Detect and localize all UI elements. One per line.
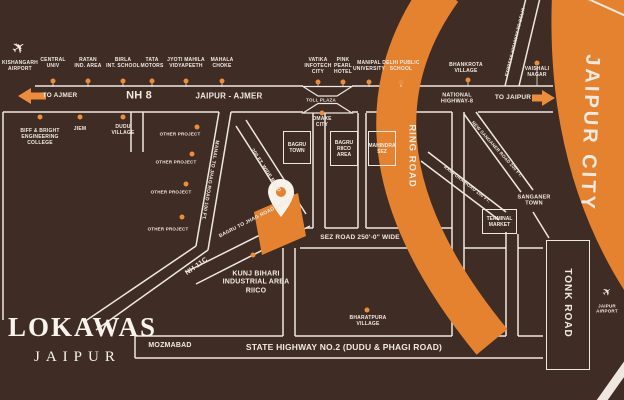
to-jaipur-arrow-icon: [532, 90, 555, 106]
label-to-jaipur: TO JAIPUR: [495, 94, 531, 102]
label-to-ajmer: TO AJMER: [43, 92, 78, 100]
location-map: ✈ ✈ KISHANGARH AIRPORT CENTRAL UNIV RATA…: [0, 0, 624, 400]
label-mahala-choke: MAHALA CHOKE: [211, 58, 234, 70]
label-kunj-bihari-riico: KUNJ BIHARI INDUSTRIAL AREA RIICO: [223, 271, 290, 296]
label-delhi-public-school: DELHI PUBLIC SCHOOL: [382, 61, 419, 73]
label-nh8: NH 8: [126, 90, 152, 103]
label-kishangarh-airport: KISHANGARH AIRPORT: [2, 61, 38, 73]
label-mozmabad: MOZMABAD: [148, 342, 191, 350]
label-other-project: OTHER PROJECT: [148, 226, 189, 231]
label-jiem: JIEM: [74, 127, 86, 133]
label-other-project: OTHER PROJECT: [156, 159, 197, 164]
label-other-project: OTHER PROJECT: [151, 189, 192, 194]
label-jaipur-ajmer: JAIPUR - AJMER: [196, 91, 263, 100]
label-other-project: OTHER PROJECT: [160, 131, 201, 136]
label-sanganer-town: SANGANER TOWN: [517, 195, 550, 208]
label-dudu-village: DUDU VILLAGE: [111, 125, 134, 137]
label-omaxe-city: OMAXE CITY: [312, 117, 331, 129]
label-vatika-infotech-city: VATIKA INFOTECH CITY: [304, 58, 331, 76]
brand-name: LOKAWAS: [8, 312, 157, 343]
label-central-univ: CENTRAL UNIV: [40, 58, 65, 70]
box-mahindra-sez: MAHINDRA SEZ: [368, 131, 396, 166]
box-bagru-riico-area: BAGRU RIICO AREA: [330, 131, 358, 166]
label-state-highway-2: STATE HIGHWAY NO.2 (DUDU & PHAGI ROAD): [246, 342, 442, 352]
label-birla-int-school: BIRLA INT. SCHOOL: [106, 58, 140, 70]
label-tata-motors: TATA MOTORS: [140, 58, 163, 70]
label-national-highway8: NATIONAL HIGHWAY-8: [441, 93, 473, 106]
brand-city: JAIPUR: [34, 349, 121, 366]
corner-road-stripe: [598, 358, 624, 400]
box-terminal-market: TERMINAL MARKET: [482, 209, 517, 234]
label-vaishali-nagar: VAISHALI NAGAR: [525, 67, 550, 79]
label-manipal-university: MANIPAL UNIVERSITY: [353, 61, 385, 73]
label-ring-road: RING ROAD: [406, 124, 417, 187]
label-toll-plaza: TOLL PLAZA: [306, 97, 336, 102]
label-jaipur-airport: JAIPUR AIRPORT: [596, 304, 618, 315]
label-ratan-ind-area: RATAN IND. AREA: [74, 58, 101, 70]
label-bharatpura-village: BHARATPURA VILLAGE: [350, 316, 387, 328]
box-tonk-road: [546, 240, 590, 370]
label-bhankrota-village: BHANKROTA VILLAGE: [449, 63, 483, 75]
label-sez-road: SEZ ROAD 250'-0" WIDE: [320, 234, 400, 242]
label-jyoti-mahila-vidyapeeth: JYOTI MAHILA VIDYAPEETH: [167, 58, 205, 70]
box-bagru-town: BAGRU TOWN: [283, 131, 311, 164]
label-biff-bright-college: BIFF & BRIGHT ENGINEERING COLLEGE: [20, 129, 59, 147]
label-pink-pearl-hotel: PINK PEARL HOTEL: [334, 58, 352, 76]
